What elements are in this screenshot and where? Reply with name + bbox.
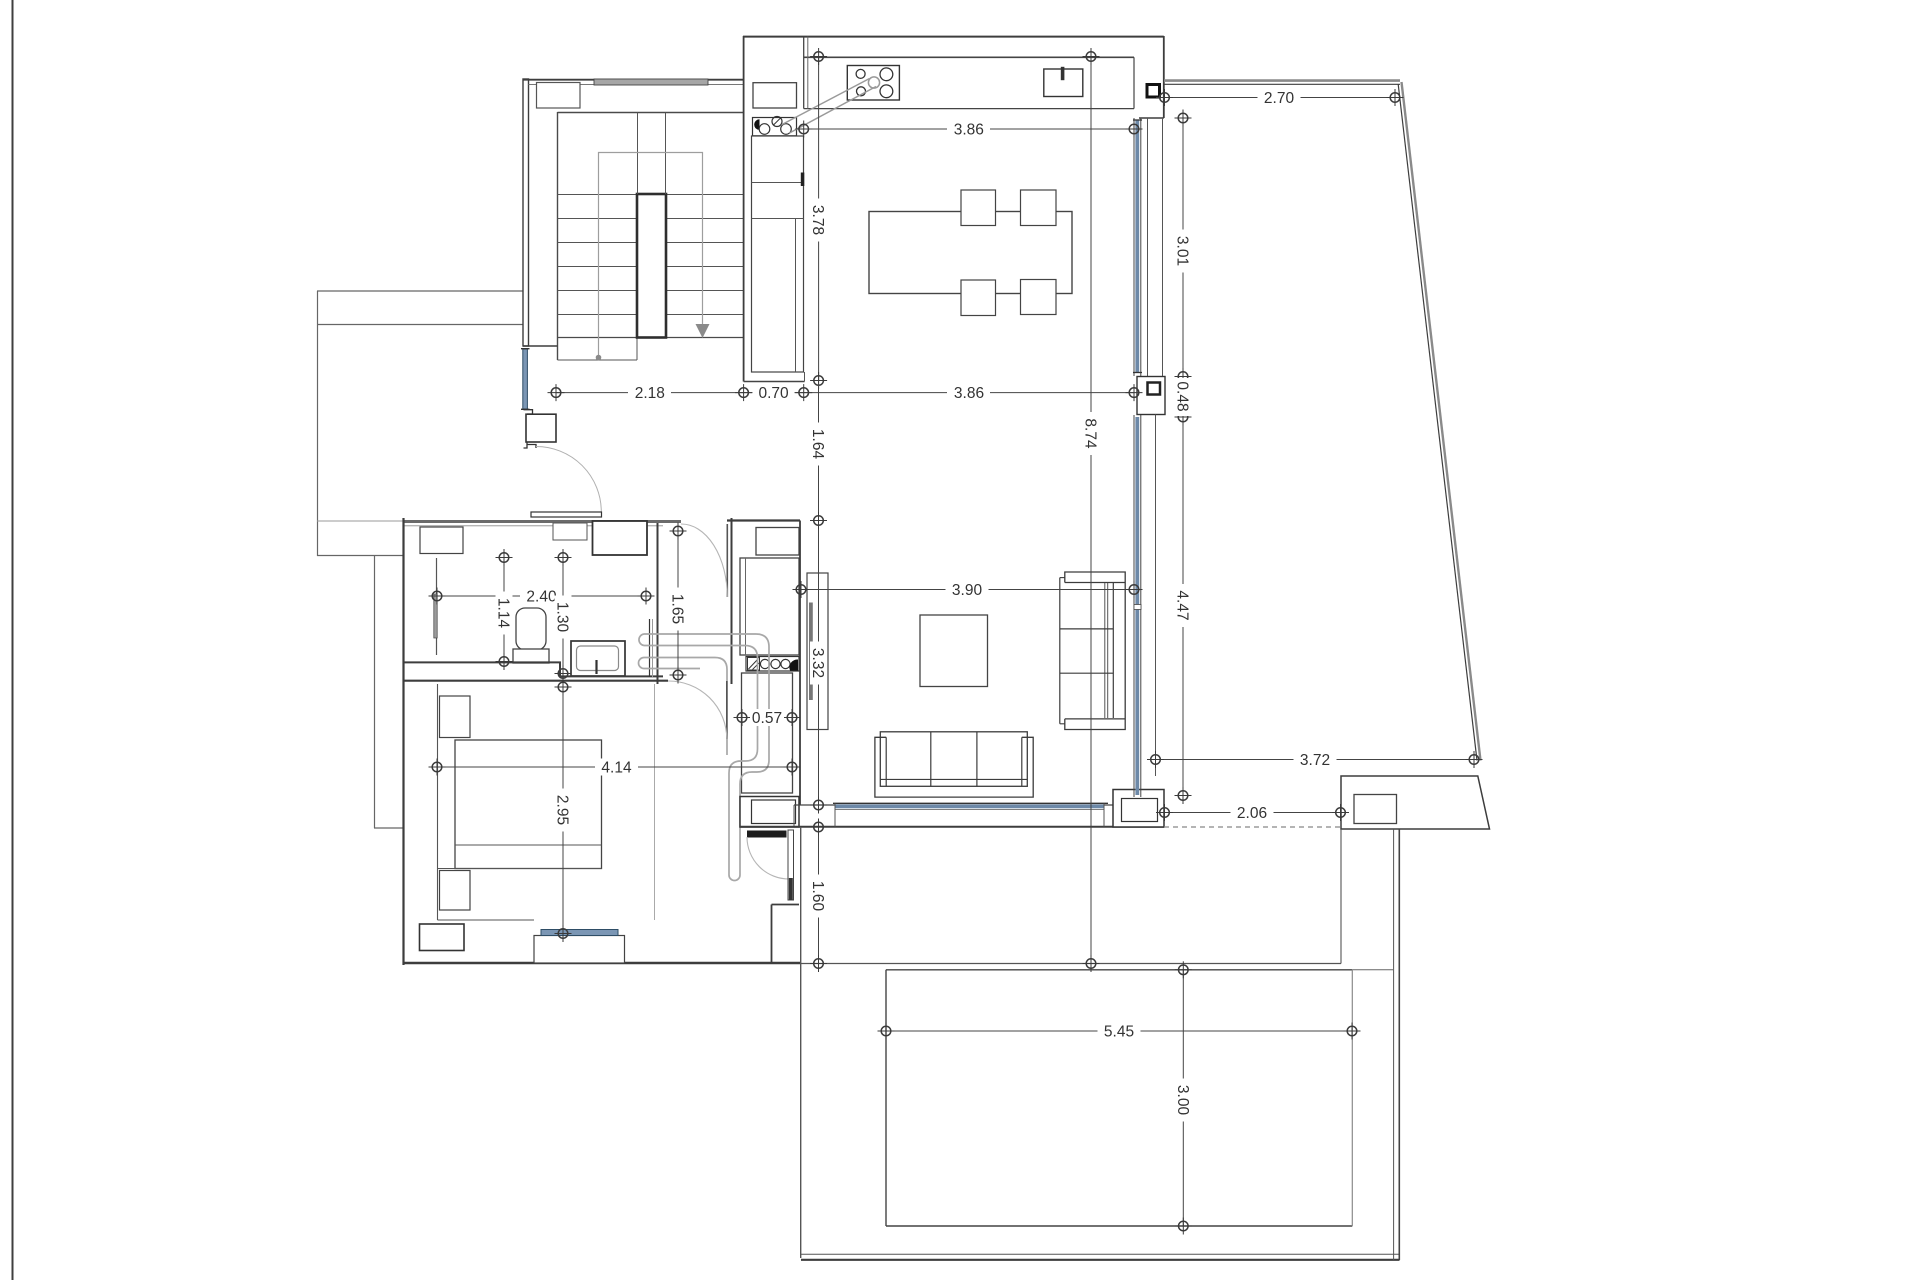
svg-text:1.14: 1.14 xyxy=(495,598,512,629)
svg-text:0.70: 0.70 xyxy=(759,385,790,402)
svg-text:5.45: 5.45 xyxy=(1104,1024,1134,1041)
svg-text:3.78: 3.78 xyxy=(809,205,826,235)
svg-text:3.32: 3.32 xyxy=(809,648,826,678)
svg-text:2.18: 2.18 xyxy=(635,385,665,402)
svg-text:2.40: 2.40 xyxy=(526,589,557,606)
svg-text:8.74: 8.74 xyxy=(1082,418,1099,449)
svg-text:1.30: 1.30 xyxy=(554,602,571,633)
svg-text:1.60: 1.60 xyxy=(809,881,826,912)
svg-text:3.86: 3.86 xyxy=(954,122,984,139)
svg-text:3.86: 3.86 xyxy=(954,385,984,402)
svg-text:2.70: 2.70 xyxy=(1264,90,1295,107)
svg-text:2.95: 2.95 xyxy=(554,795,571,825)
svg-text:1.64: 1.64 xyxy=(809,429,826,460)
svg-text:3.00: 3.00 xyxy=(1174,1085,1191,1116)
svg-text:3.72: 3.72 xyxy=(1300,752,1330,769)
svg-text:0.57: 0.57 xyxy=(752,710,782,727)
svg-text:1.65: 1.65 xyxy=(669,594,686,624)
svg-text:2.06: 2.06 xyxy=(1237,805,1267,822)
svg-text:4.47: 4.47 xyxy=(1174,590,1191,620)
svg-text:4.14: 4.14 xyxy=(601,760,632,777)
svg-text:0.48: 0.48 xyxy=(1174,381,1191,411)
svg-text:3.90: 3.90 xyxy=(952,582,983,599)
svg-text:3.01: 3.01 xyxy=(1174,236,1191,266)
